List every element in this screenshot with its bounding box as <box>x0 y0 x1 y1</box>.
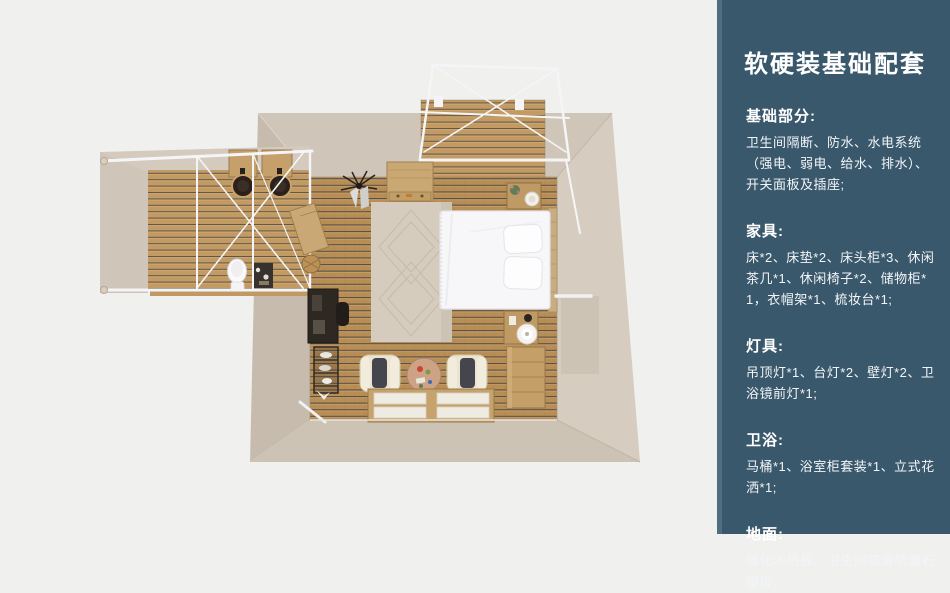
nightstand-bottom <box>504 311 538 344</box>
section-flooring-body: 强化木地板、卫生间防滑防潮石塑板; <box>746 550 936 592</box>
section-furniture-heading: 家具: <box>746 220 936 241</box>
leisure-chair-left <box>360 355 400 392</box>
bathroom-left-wall <box>100 152 148 293</box>
leisure-chair-right <box>447 355 487 392</box>
floorplan-svg <box>0 0 717 534</box>
bathroom-cabinet <box>252 263 273 288</box>
terrace-deck <box>421 100 545 177</box>
panel-title: 软硬装基础配套 <box>744 44 936 79</box>
storage-cabinet <box>387 162 433 202</box>
section-bathroom-body: 马桶*1、浴室柜套装*1、立式花洒*1; <box>746 456 936 498</box>
dresser <box>507 347 545 408</box>
section-basics-heading: 基础部分: <box>746 105 936 126</box>
nightstand-top <box>507 183 541 209</box>
section-basics: 基础部分: 卫生间隔断、防水、水电系统（强电、弱电、给水、排水）、开关面板及插座… <box>746 105 936 195</box>
section-bathroom-heading: 卫浴: <box>746 429 936 450</box>
section-lighting-heading: 灯具: <box>746 335 936 356</box>
coat-rack-shelf <box>314 347 338 400</box>
section-lighting-body: 吊顶灯*1、台灯*2、壁灯*2、卫浴镜前灯*1; <box>746 362 936 404</box>
double-bed <box>440 208 557 312</box>
info-panel: 软硬装基础配套 基础部分: 卫生间隔断、防水、水电系统（强电、弱电、给水、排水）… <box>717 0 950 534</box>
right-wall-panel <box>561 296 599 374</box>
section-furniture: 家具: 床*2、床垫*2、床头柜*3、休闲茶几*1、休闲椅子*2、储物柜*1，衣… <box>746 220 936 310</box>
section-lighting: 灯具: 吊顶灯*1、台灯*2、壁灯*2、卫浴镜前灯*1; <box>746 335 936 404</box>
floorplan-render <box>0 0 717 534</box>
vanity-stool <box>336 302 349 326</box>
section-furniture-body: 床*2、床垫*2、床头柜*3、休闲茶几*1、休闲椅子*2、储物柜*1，衣帽架*1… <box>746 247 936 310</box>
floor-windows <box>368 389 494 422</box>
tea-table <box>407 358 441 392</box>
section-bathroom: 卫浴: 马桶*1、浴室柜套装*1、立式花洒*1; <box>746 429 936 498</box>
section-basics-body: 卫生间隔断、防水、水电系统（强电、弱电、给水、排水）、开关面板及插座; <box>746 132 936 195</box>
wall-lamp <box>556 296 592 298</box>
page: 软硬装基础配套 基础部分: 卫生间隔断、防水、水电系统（强电、弱电、给水、排水）… <box>0 0 950 534</box>
